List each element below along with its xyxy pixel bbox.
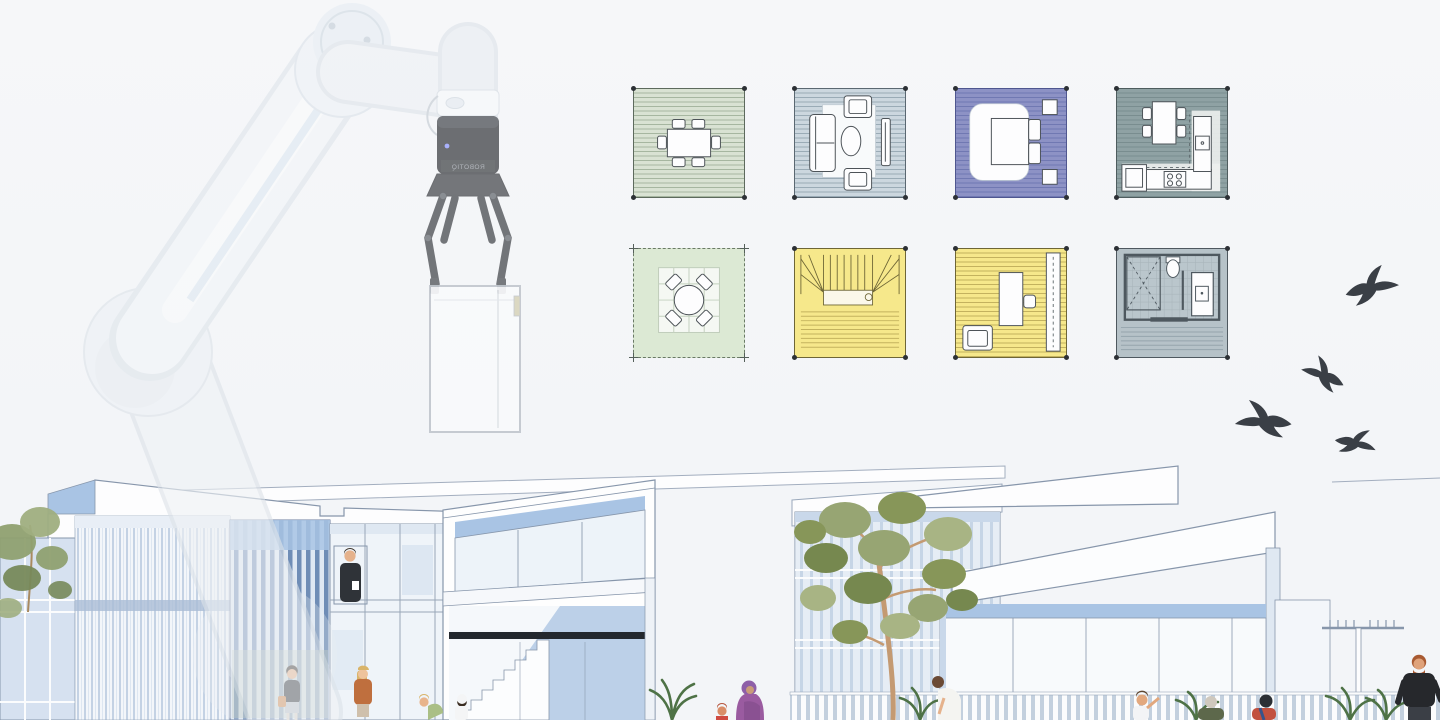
floorplan-tile-grid <box>633 88 1228 358</box>
gripper-brand-label: ROBOTIQ <box>451 164 484 171</box>
floorplan-tile-bathroom <box>1116 248 1228 358</box>
patio-furniture <box>634 249 744 357</box>
led-indicator-icon <box>445 144 450 149</box>
floorplan-tile-study-bedroom <box>955 248 1067 358</box>
study-furniture <box>956 249 1066 357</box>
bird-icon <box>1228 396 1297 446</box>
kitchen-furniture <box>1117 89 1227 197</box>
floorplan-tile-bedroom <box>955 88 1067 198</box>
living-room-furniture <box>795 89 905 197</box>
toddler-red <box>716 703 728 720</box>
illustration-canvas: ROBOTIQ <box>0 0 1440 720</box>
woman-purple-hijab <box>736 681 764 720</box>
floorplan-tile-living-room <box>794 88 906 198</box>
floorplan-tile-patio <box>633 248 745 358</box>
floorplan-tile-staircase <box>794 248 906 358</box>
bird-icon <box>1292 342 1355 408</box>
gripper-fingers <box>428 196 508 284</box>
bird-icon <box>1340 261 1404 313</box>
bathroom-plan <box>1117 249 1227 357</box>
dining-room-furniture <box>634 89 744 197</box>
floorplan-tile-kitchen <box>1116 88 1228 198</box>
robot-arm: ROBOTIQ <box>0 0 620 720</box>
floorplan-tile-dining-room <box>633 88 745 198</box>
gripper: ROBOTIQ <box>425 116 511 294</box>
carried-module <box>430 286 520 432</box>
staircase-plan <box>795 249 905 357</box>
bedroom-furniture <box>956 89 1066 197</box>
